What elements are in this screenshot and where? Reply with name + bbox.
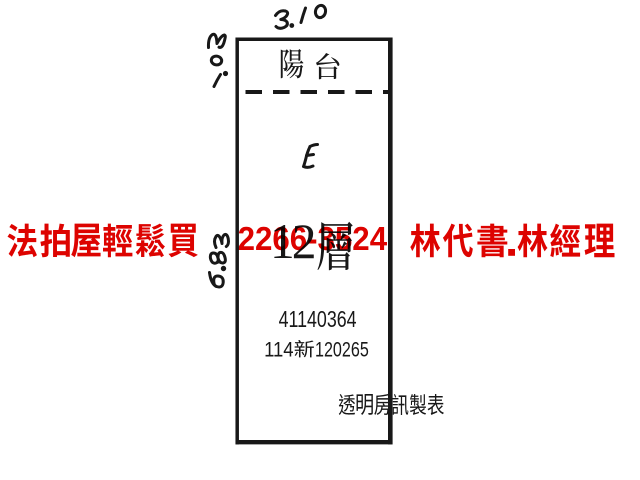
svg-text:41140364: 41140364 xyxy=(279,306,357,332)
svg-text:120265: 120265 xyxy=(315,339,369,362)
svg-text:114: 114 xyxy=(264,339,294,362)
svg-text:2266-3524: 2266-3524 xyxy=(238,221,388,258)
